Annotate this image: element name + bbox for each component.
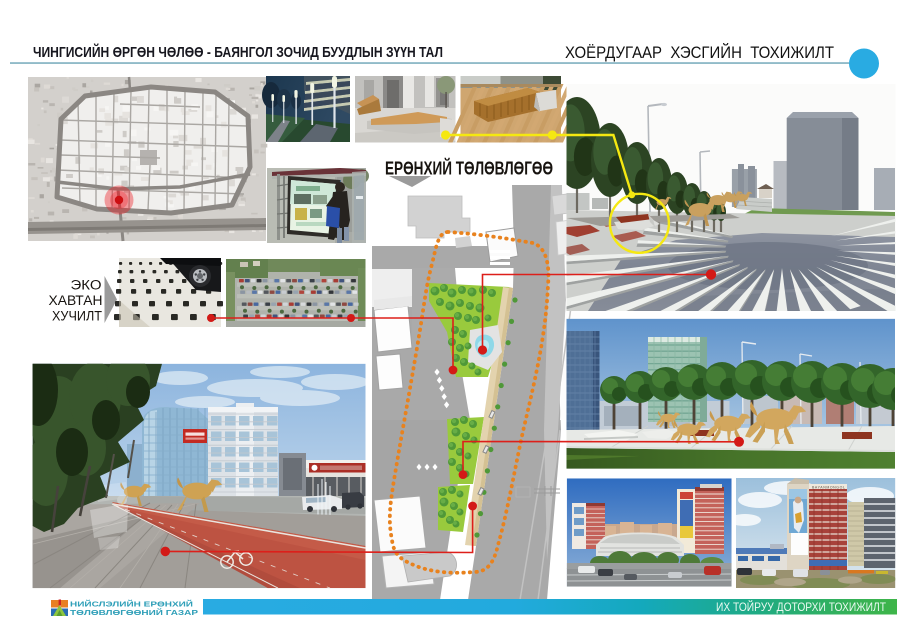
- svg-text:НИЙСЛЭЛИЙН ЕРӨНХИЙ: НИЙСЛЭЛИЙН ЕРӨНХИЙ: [70, 600, 193, 609]
- svg-text:ТӨЛӨВЛӨГӨӨНИЙ ГАЗАР: ТӨЛӨВЛӨГӨӨНИЙ ГАЗАР: [70, 608, 198, 617]
- svg-text:ХУЧИЛТ: ХУЧИЛТ: [52, 309, 102, 324]
- svg-text:ИХ ТОЙРУУ ДОТОРХИ ТОХИЖИЛТ: ИХ ТОЙРУУ ДОТОРХИ ТОХИЖИЛТ: [716, 601, 886, 614]
- svg-text:ЕРӨНХИЙ ТӨЛӨВЛӨГӨӨ: ЕРӨНХИЙ ТӨЛӨВЛӨГӨӨ: [385, 158, 553, 179]
- svg-text:ХАВТАН: ХАВТАН: [49, 293, 103, 308]
- svg-text:ХОЁРДУГААР ХЭСГИЙН ТОХИЖИЛТ: ХОЁРДУГААР ХЭСГИЙН ТОХИЖИЛТ: [565, 43, 834, 62]
- svg-text:ЧИНГИСИЙН ӨРГӨН ЧӨЛӨӨ - БАЯНГО: ЧИНГИСИЙН ӨРГӨН ЧӨЛӨӨ - БАЯНГОЛ ЗОЧИД БУ…: [33, 43, 443, 61]
- svg-text:BAYANMONGOL: BAYANMONGOL: [812, 486, 846, 490]
- svg-text:ЭКО: ЭКО: [71, 278, 102, 293]
